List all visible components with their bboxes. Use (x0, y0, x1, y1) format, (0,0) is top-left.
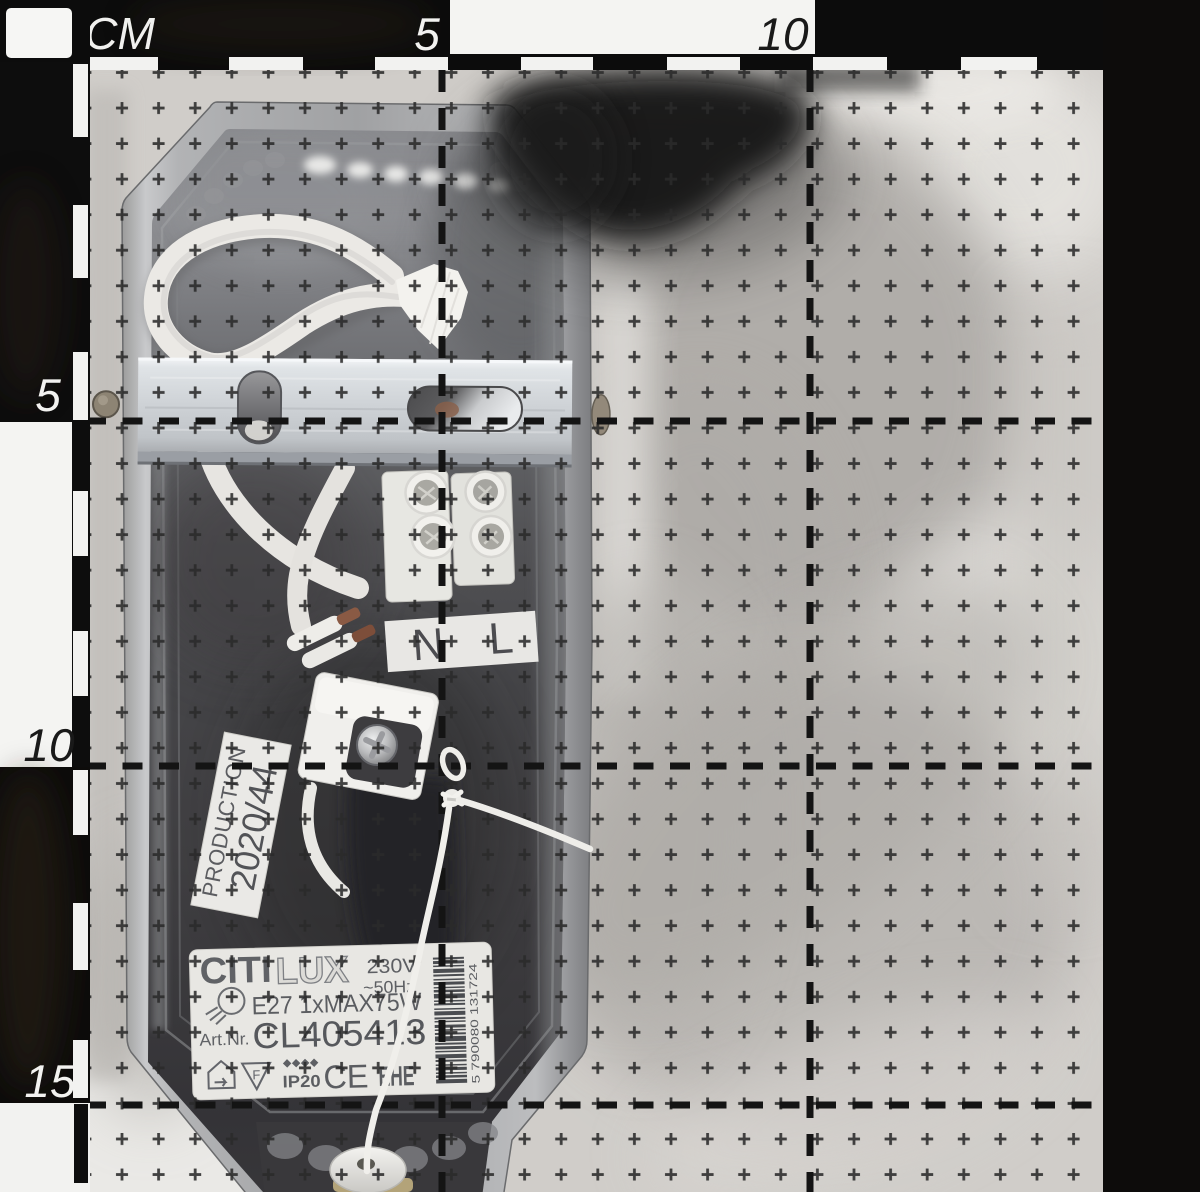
svg-text:5: 5 (414, 8, 440, 60)
svg-text:15: 15 (24, 1055, 76, 1107)
svg-text:10: 10 (757, 8, 809, 60)
svg-text:5: 5 (35, 369, 61, 421)
svg-text:CM: CM (85, 8, 155, 59)
svg-text:10: 10 (23, 719, 75, 771)
